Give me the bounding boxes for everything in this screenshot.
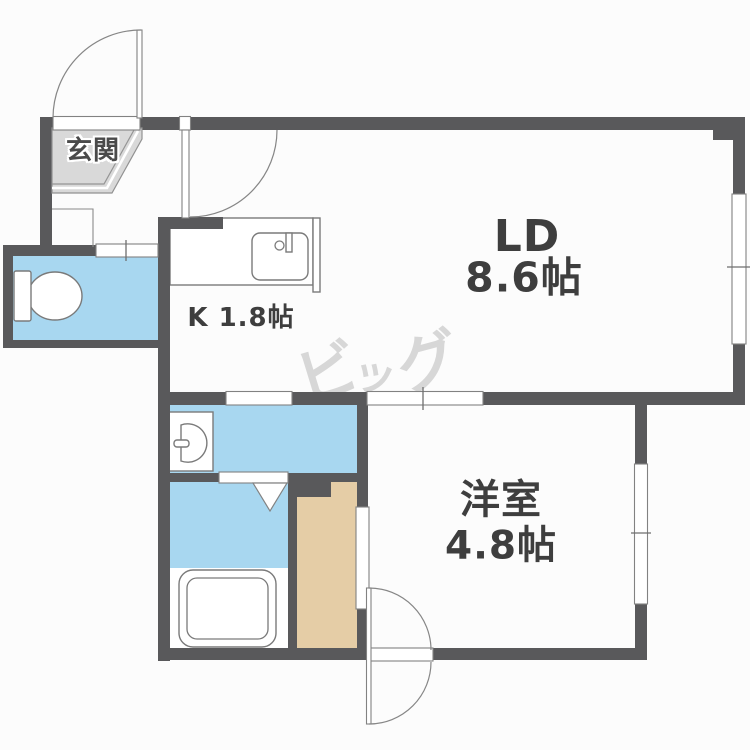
entrance-door-leaf: [137, 30, 142, 118]
western-room-size-label: 4.8帖: [445, 527, 557, 566]
kitchen-counter-side: [313, 218, 320, 292]
entrance-door-arc: [53, 30, 141, 118]
wall-top-main: [190, 117, 713, 130]
genkan-step-line: [52, 209, 93, 247]
ld-size-label: 8.6帖: [465, 258, 583, 299]
western-room-east-window: [635, 464, 648, 604]
wall-top-mid: [140, 117, 180, 130]
wall-toilet-bottom: [3, 340, 158, 348]
western-room-door-arc-upper: [369, 588, 431, 650]
washbasin-faucet-icon: [174, 440, 189, 447]
toilet-tank: [14, 271, 31, 321]
kitchen-door-arc: [190, 130, 277, 217]
wall-bath-closet-divider: [288, 482, 297, 648]
genkan-label: 玄関: [66, 138, 120, 164]
floor-plan-drawing: [0, 0, 750, 750]
washroom-door-opening: [226, 392, 292, 406]
ld-east-window: [732, 194, 746, 344]
entrance-opening: [53, 117, 140, 131]
western-room-door-arc-lower: [369, 662, 431, 724]
closet-floor: [297, 482, 357, 648]
bathtub-outer: [179, 570, 276, 647]
kitchen-door-leaf: [182, 130, 189, 218]
kitchen-label: K 1.8帖: [187, 305, 294, 331]
wall-top-right-corner: [713, 117, 745, 140]
western-room-south-door-opening: [367, 648, 433, 661]
toilet-door-opening: [96, 244, 158, 257]
wall-center-vertical: [158, 217, 170, 661]
toilet-bowl: [28, 272, 82, 320]
western-room-label: 洋室: [460, 480, 542, 520]
bath-door-opening: [219, 472, 288, 483]
ld-partition-window: [367, 392, 483, 406]
wall-closet-notch: [297, 482, 331, 497]
wall-toilet-west: [3, 245, 13, 348]
kitchen-door-gap: [180, 117, 191, 131]
wall-west-outer: [40, 117, 52, 245]
western-room-door-leaf: [367, 588, 372, 724]
ld-label: LD: [494, 215, 561, 259]
sink-faucet-bar: [286, 233, 292, 252]
wall-kitchen-partition: [158, 217, 223, 229]
floor-plan: ビ ッ グ: [0, 0, 750, 750]
kitchen-sink: [252, 233, 308, 280]
